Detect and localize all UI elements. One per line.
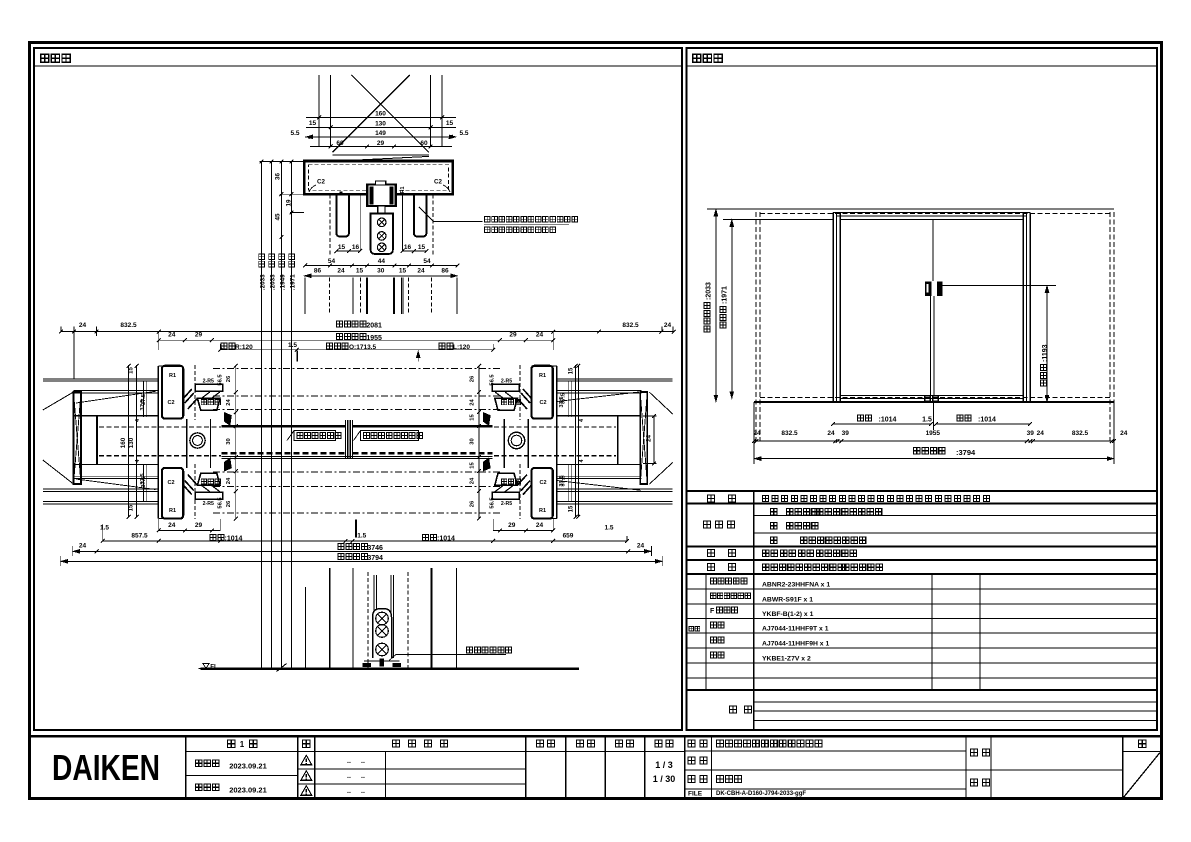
svg-text:2-R5: 2-R5 [501, 379, 512, 385]
svg-text:24: 24 [1120, 430, 1128, 437]
svg-text:24: 24 [470, 399, 476, 406]
svg-text:R:120: R:120 [235, 344, 253, 351]
svg-text:1.5: 1.5 [100, 525, 109, 532]
svg-text:15: 15 [446, 120, 454, 127]
svg-text:149: 149 [375, 130, 386, 137]
svg-text:F: F [710, 608, 715, 615]
svg-text:29: 29 [377, 140, 385, 147]
svg-text:5.5: 5.5 [290, 130, 299, 137]
svg-text:1955: 1955 [926, 430, 941, 437]
svg-text:24: 24 [637, 543, 645, 550]
svg-text::1193: :1193 [1042, 344, 1049, 362]
svg-text:2023.09.21: 2023.09.21 [229, 786, 267, 795]
svg-text:857.5: 857.5 [131, 532, 148, 539]
svg-text:15: 15 [569, 505, 575, 512]
svg-text:C2: C2 [434, 179, 442, 186]
svg-text:ABWR-S91F x 1: ABWR-S91F x 1 [762, 597, 813, 604]
svg-text:37.5: 37.5 [559, 475, 565, 487]
svg-text:832.5: 832.5 [781, 430, 798, 437]
svg-text:2-R5: 2-R5 [501, 501, 512, 507]
svg-text:15: 15 [338, 244, 346, 251]
svg-text:15: 15 [356, 268, 364, 275]
svg-text:AJ7044-11HHF9H x 1: AJ7044-11HHF9H x 1 [762, 641, 829, 648]
svg-text::2033: :2033 [706, 282, 713, 300]
svg-text:2-R5: 2-R5 [203, 501, 214, 507]
svg-text:15: 15 [569, 367, 575, 374]
svg-text::1014: :1014 [225, 536, 243, 543]
svg-text:24: 24 [417, 268, 425, 275]
svg-text::1014: :1014 [437, 536, 455, 543]
svg-text:16: 16 [352, 244, 360, 251]
svg-text:1 / 3: 1 / 3 [655, 760, 673, 770]
svg-text:24: 24 [168, 332, 176, 339]
svg-text:AJ7044-11HHF9T x 1: AJ7044-11HHF9T x 1 [762, 626, 829, 633]
svg-text:R1: R1 [539, 373, 546, 379]
svg-text:1.5: 1.5 [604, 525, 613, 532]
svg-text:832.5: 832.5 [622, 322, 639, 329]
svg-text:C2: C2 [167, 480, 174, 486]
svg-text:29: 29 [195, 332, 203, 339]
svg-text::1014: :1014 [978, 417, 996, 424]
svg-text:29: 29 [508, 522, 516, 529]
svg-text:832.5: 832.5 [120, 322, 137, 329]
svg-text:R1: R1 [169, 373, 176, 379]
svg-text:FILE: FILE [688, 791, 703, 798]
svg-text:..: .. [347, 773, 351, 780]
svg-text:R1: R1 [539, 508, 546, 514]
svg-text:29: 29 [509, 332, 517, 339]
svg-text::2033: :2033 [270, 274, 277, 291]
svg-text:24: 24 [1037, 430, 1045, 437]
svg-text:86: 86 [441, 268, 449, 275]
svg-text:2023.09.21: 2023.09.21 [229, 762, 267, 771]
svg-text:86: 86 [314, 268, 322, 275]
svg-text:ABNR2-23HHFNA x 1: ABNR2-23HHFNA x 1 [762, 582, 830, 589]
svg-text::2033: :2033 [260, 274, 267, 291]
svg-text:15: 15 [418, 244, 426, 251]
svg-text:..: .. [361, 758, 365, 765]
svg-text:30: 30 [377, 268, 385, 275]
svg-text:..: .. [361, 788, 365, 795]
svg-text:130: 130 [375, 120, 386, 127]
svg-text:56.5: 56.5 [490, 497, 496, 509]
svg-text:37.5: 37.5 [140, 473, 146, 485]
svg-text:24: 24 [79, 543, 87, 550]
svg-text:29: 29 [195, 522, 203, 529]
svg-text::1955: :1955 [364, 335, 382, 342]
svg-text:..: .. [347, 758, 351, 765]
svg-text:24: 24 [226, 477, 232, 484]
svg-text::3794: :3794 [365, 555, 383, 562]
svg-text:19: 19 [286, 199, 293, 207]
svg-text:..: .. [361, 773, 365, 780]
svg-text:24: 24 [536, 332, 544, 339]
svg-text::1971: :1971 [722, 286, 729, 304]
svg-text:15: 15 [470, 414, 476, 421]
svg-text::2081: :2081 [364, 322, 382, 329]
svg-text:26: 26 [470, 375, 476, 382]
svg-text:1.5: 1.5 [288, 342, 297, 349]
svg-text:26: 26 [470, 500, 476, 507]
svg-text:60: 60 [420, 140, 428, 147]
svg-text:24: 24 [79, 322, 87, 329]
svg-text:24: 24 [226, 399, 232, 406]
svg-text:659: 659 [563, 532, 574, 539]
svg-text:56.5: 56.5 [218, 374, 224, 386]
svg-text:..: .. [347, 788, 351, 795]
svg-text::3794: :3794 [956, 448, 976, 457]
svg-text:O:1713.5: O:1713.5 [349, 344, 376, 351]
svg-text:36: 36 [275, 173, 282, 181]
svg-text:1 / 30: 1 / 30 [653, 774, 676, 784]
svg-text::1949: :1949 [280, 274, 287, 291]
svg-text:54: 54 [423, 258, 431, 265]
svg-text:C2: C2 [317, 179, 325, 186]
svg-text:26: 26 [226, 500, 232, 507]
svg-text:R1: R1 [169, 508, 176, 514]
svg-text:1: 1 [240, 740, 245, 749]
svg-text:15: 15 [309, 120, 317, 127]
svg-text:130: 130 [128, 437, 135, 448]
svg-text:30: 30 [470, 438, 476, 444]
svg-text:C2: C2 [167, 400, 174, 406]
svg-text:16: 16 [404, 244, 412, 251]
svg-text:24: 24 [646, 435, 653, 443]
svg-text:R1: R1 [400, 186, 406, 193]
svg-text:L:120: L:120 [453, 344, 470, 351]
svg-text:15: 15 [129, 504, 135, 511]
svg-text:15: 15 [226, 414, 232, 421]
svg-text:2-R5: 2-R5 [203, 379, 214, 385]
svg-text:C2: C2 [539, 400, 546, 406]
svg-text::3746: :3746 [365, 545, 383, 552]
svg-text:160: 160 [375, 111, 386, 118]
svg-text:24: 24 [827, 430, 835, 437]
svg-text:44: 44 [378, 258, 386, 265]
svg-text:45: 45 [275, 213, 282, 221]
svg-text:DAIKEN: DAIKEN [52, 747, 160, 788]
svg-text::1971: :1971 [290, 274, 297, 291]
svg-text:160: 160 [120, 437, 127, 448]
svg-text:24: 24 [753, 430, 761, 437]
svg-text:56.5: 56.5 [490, 374, 496, 386]
svg-text:60: 60 [336, 140, 344, 147]
svg-text:1.5: 1.5 [357, 533, 366, 540]
svg-text:15: 15 [399, 268, 407, 275]
svg-text:24: 24 [536, 522, 544, 529]
svg-text:C2: C2 [539, 480, 546, 486]
svg-text::1014: :1014 [879, 417, 897, 424]
svg-text:YKBE1-Z7V x 2: YKBE1-Z7V x 2 [762, 656, 811, 663]
svg-text:24: 24 [470, 477, 476, 484]
svg-text:37.5: 37.5 [140, 399, 146, 411]
svg-text:1.5: 1.5 [922, 417, 932, 424]
svg-text:DK-CBH-A-D160-J794-2033-ggF: DK-CBH-A-D160-J794-2033-ggF [716, 791, 806, 797]
svg-text:37.5: 37.5 [559, 396, 565, 408]
svg-text:5.5: 5.5 [459, 130, 468, 137]
svg-text:15: 15 [470, 462, 476, 469]
svg-text:26: 26 [226, 375, 232, 382]
svg-text:56.5: 56.5 [218, 497, 224, 509]
svg-text:24: 24 [168, 522, 176, 529]
svg-text:30: 30 [226, 438, 232, 444]
svg-text:YKBF-B(1-2) x 1: YKBF-B(1-2) x 1 [762, 611, 814, 618]
svg-text:39: 39 [842, 430, 850, 437]
svg-text:24: 24 [337, 268, 345, 275]
svg-text:24: 24 [664, 322, 672, 329]
svg-text:832.5: 832.5 [1072, 430, 1089, 437]
svg-text:15: 15 [129, 367, 135, 374]
svg-text:15: 15 [226, 462, 232, 469]
svg-text:39: 39 [1027, 430, 1035, 437]
